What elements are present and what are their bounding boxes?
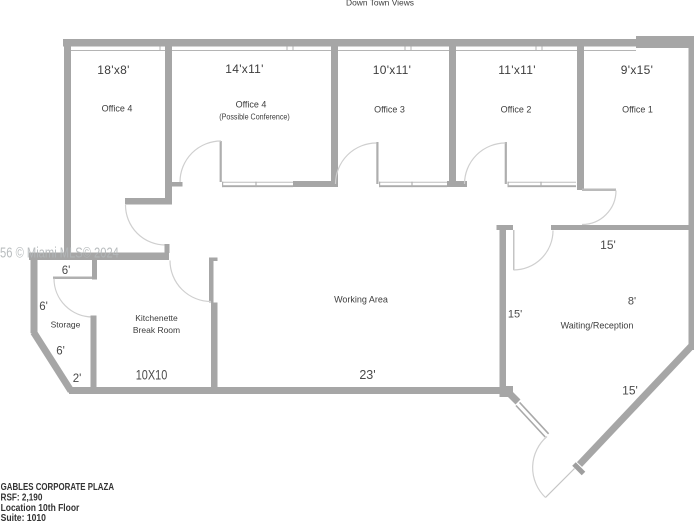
svg-text:10'x11': 10'x11' (373, 63, 412, 77)
svg-text:Office 2: Office 2 (501, 105, 532, 115)
svg-text:Office 3: Office 3 (374, 105, 405, 115)
svg-text:10X10: 10X10 (136, 367, 168, 383)
svg-text:15': 15' (508, 309, 522, 321)
svg-text:11'x11': 11'x11' (498, 63, 536, 77)
svg-text:18'x8': 18'x8' (97, 63, 129, 77)
svg-text:GABLES CORPORATE PLAZA: GABLES CORPORATE PLAZA (1, 481, 115, 492)
svg-text:Working Area: Working Area (334, 295, 388, 305)
svg-text:(Possible Conference): (Possible Conference) (219, 112, 290, 122)
svg-text:Office 4: Office 4 (102, 104, 133, 114)
svg-text:23': 23' (359, 368, 375, 382)
svg-text:14'x11': 14'x11' (225, 62, 264, 76)
svg-text:456 © Miami MLS© 2024: 456 © Miami MLS© 2024 (0, 244, 119, 261)
svg-text:Kitchenette: Kitchenette (135, 313, 178, 323)
svg-text:Break Room: Break Room (133, 325, 180, 335)
svg-text:Office 1: Office 1 (622, 105, 653, 115)
svg-text:Storage: Storage (51, 320, 81, 330)
svg-text:6': 6' (62, 265, 71, 277)
svg-text:15': 15' (600, 238, 616, 252)
svg-text:8': 8' (628, 296, 636, 308)
svg-text:6': 6' (39, 301, 48, 313)
svg-text:Down Town Views: Down Town Views (346, 0, 414, 8)
svg-text:2': 2' (73, 373, 82, 385)
svg-text:Waiting/Reception: Waiting/Reception (561, 321, 634, 331)
svg-text:Office 4: Office 4 (236, 100, 267, 110)
svg-text:15': 15' (622, 384, 638, 398)
svg-text:RSF: 2,190: RSF: 2,190 (1, 492, 43, 503)
svg-text:9'x15': 9'x15' (621, 63, 653, 77)
svg-text:6': 6' (56, 346, 65, 358)
svg-text:Suite: 1010: Suite: 1010 (1, 512, 46, 522)
